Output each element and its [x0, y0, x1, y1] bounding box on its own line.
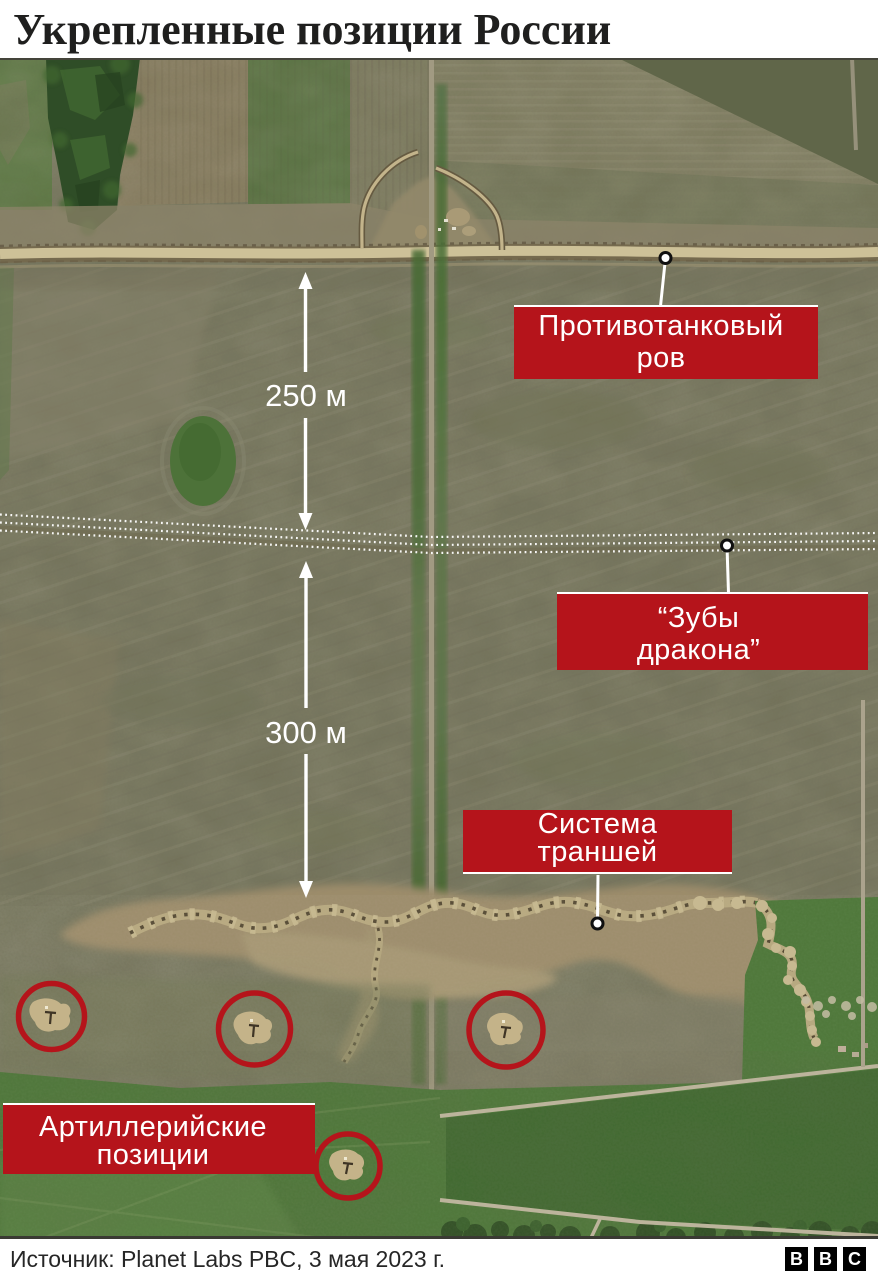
svg-text:250 м: 250 м [265, 378, 347, 413]
svg-text:300 м: 300 м [265, 715, 347, 750]
